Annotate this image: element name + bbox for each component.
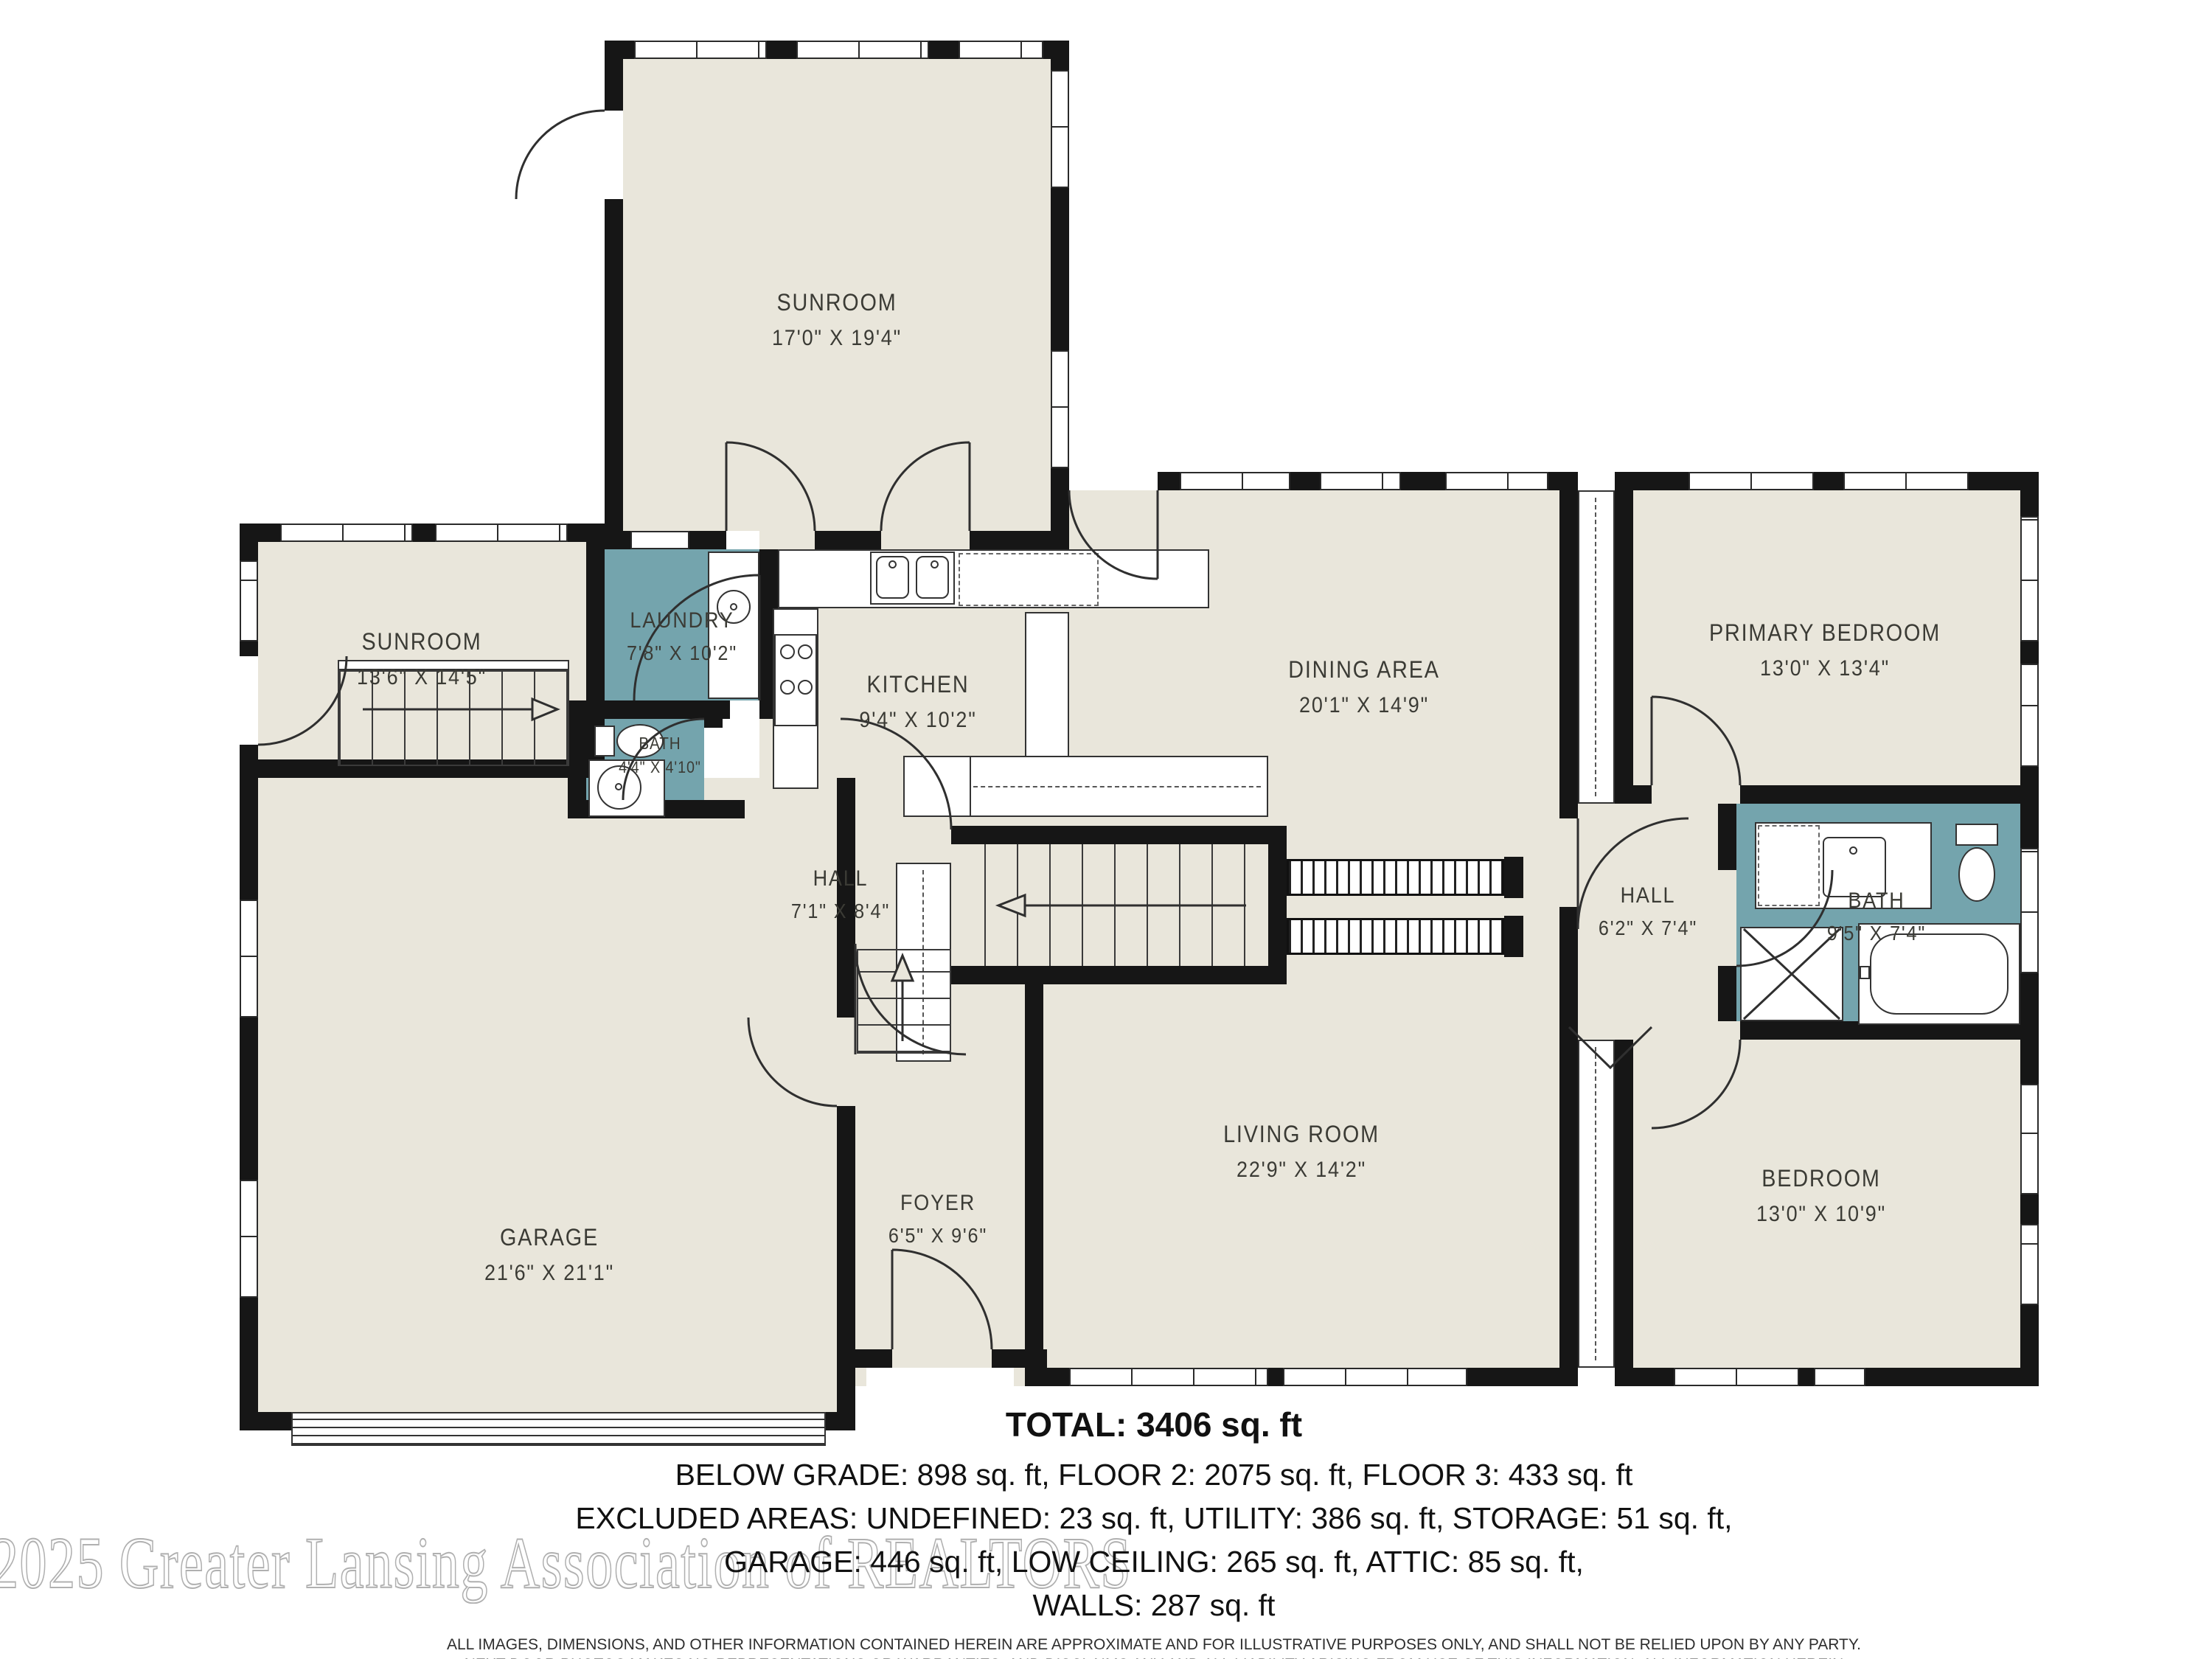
room-name: HALL	[1582, 883, 1714, 908]
room-dims: 13'6" X 14'5"	[302, 665, 541, 690]
summary-line: EXCLUDED AREAS: UNDEFINED: 23 sq. ft, UT…	[96, 1497, 2212, 1540]
stair-arrowhead	[892, 956, 913, 981]
room-label-bedroom: BEDROOM 13'0" X 10'9"	[1688, 1165, 1954, 1227]
room-label-laundry: LAUNDRY 7'8" X 10'2"	[613, 608, 752, 665]
disclaimer-line: NEXT DOOR PHOTOS MAKES NO REPRESENTATION…	[96, 1655, 2212, 1659]
room-label-kitchen: KITCHEN 9'4" X 10'2"	[818, 671, 1018, 733]
summary-line: WALLS: 287 sq. ft	[96, 1584, 2212, 1627]
disclaimer: ALL IMAGES, DIMENSIONS, AND OTHER INFORM…	[96, 1635, 2212, 1659]
door-arc	[1652, 697, 1740, 785]
door-arc	[726, 442, 815, 531]
door-arc	[748, 1018, 837, 1106]
door-arc	[516, 111, 605, 199]
room-dims: 9'5" X 7'4"	[1797, 922, 1956, 945]
room-name: DINING AREA	[1231, 656, 1497, 684]
room-name: HALL	[761, 866, 920, 891]
room-dims: 6'2" X 7'4"	[1582, 917, 1714, 940]
room-name: BATH	[604, 734, 717, 754]
room-name: GARAGE	[417, 1224, 682, 1251]
summary-line: GARAGE: 446 sq. ft, LOW CEILING: 265 sq.…	[96, 1540, 2212, 1584]
floorplan-canvas: SUNROOM 17'0" X 19'4" SUNROOM 13'6" X 14…	[0, 0, 2212, 1659]
door-arc	[1652, 1040, 1740, 1128]
room-label-sunroom-left: SUNROOM 13'6" X 14'5"	[302, 628, 541, 690]
room-dims: 7'1" X 8'4"	[761, 900, 920, 923]
total-area-text: TOTAL: 3406 sq. ft	[96, 1405, 2212, 1444]
room-name: LIVING ROOM	[1169, 1121, 1434, 1148]
room-name: BATH	[1797, 888, 1956, 914]
door-arc	[841, 719, 951, 829]
room-dims: 21'6" X 21'1"	[417, 1261, 682, 1286]
door-arc	[855, 944, 966, 1054]
summary-line: BELOW GRADE: 898 sq. ft, FLOOR 2: 2075 s…	[96, 1453, 2212, 1497]
room-label-hall-left: HALL 7'1" X 8'4"	[761, 866, 920, 923]
room-label-sunroom-top: SUNROOM 17'0" X 19'4"	[704, 289, 970, 351]
door-arc	[892, 1250, 992, 1349]
room-label-bath-small: BATH 4'4" X 4'10"	[604, 734, 717, 777]
room-dims: 22'9" X 14'2"	[1169, 1158, 1434, 1183]
door-arc	[881, 442, 970, 531]
room-name: LAUNDRY	[613, 608, 752, 633]
area-summary: TOTAL: 3406 sq. ft BELOW GRADE: 898 sq. …	[0, 1405, 2212, 1659]
room-name: PRIMARY BEDROOM	[1679, 619, 1971, 647]
room-name: BEDROOM	[1688, 1165, 1954, 1192]
disclaimer-line: ALL IMAGES, DIMENSIONS, AND OTHER INFORM…	[96, 1635, 2212, 1655]
room-name: SUNROOM	[704, 289, 970, 316]
room-label-hall-right: HALL 6'2" X 7'4"	[1582, 883, 1714, 940]
room-dims: 13'0" X 10'9"	[1688, 1202, 1954, 1227]
room-dims: 20'1" X 14'9"	[1231, 693, 1497, 718]
room-dims: 13'0" X 13'4"	[1679, 656, 1971, 681]
room-name: SUNROOM	[302, 628, 541, 655]
room-dims: 4'4" X 4'10"	[604, 758, 717, 777]
room-dims: 7'8" X 10'2"	[613, 641, 752, 665]
room-label-bath-right: BATH 9'5" X 7'4"	[1797, 888, 1956, 945]
stair-arrowhead	[998, 895, 1025, 916]
bifold-door	[1569, 1027, 1652, 1068]
door-arc	[1069, 490, 1158, 579]
room-name: FOYER	[858, 1191, 1018, 1216]
room-name: KITCHEN	[818, 671, 1018, 698]
room-dims: 6'5" X 9'6"	[858, 1224, 1018, 1248]
room-label-garage: GARAGE 21'6" X 21'1"	[417, 1224, 682, 1286]
room-label-primary-bedroom: PRIMARY BEDROOM 13'0" X 13'4"	[1679, 619, 1971, 681]
room-label-foyer: FOYER 6'5" X 9'6"	[858, 1191, 1018, 1248]
room-label-dining: DINING AREA 20'1" X 14'9"	[1231, 656, 1497, 718]
stair-arrowhead	[532, 699, 557, 720]
room-label-living-room: LIVING ROOM 22'9" X 14'2"	[1169, 1121, 1434, 1183]
room-dims: 9'4" X 10'2"	[818, 708, 1018, 733]
room-dims: 17'0" X 19'4"	[704, 326, 970, 351]
